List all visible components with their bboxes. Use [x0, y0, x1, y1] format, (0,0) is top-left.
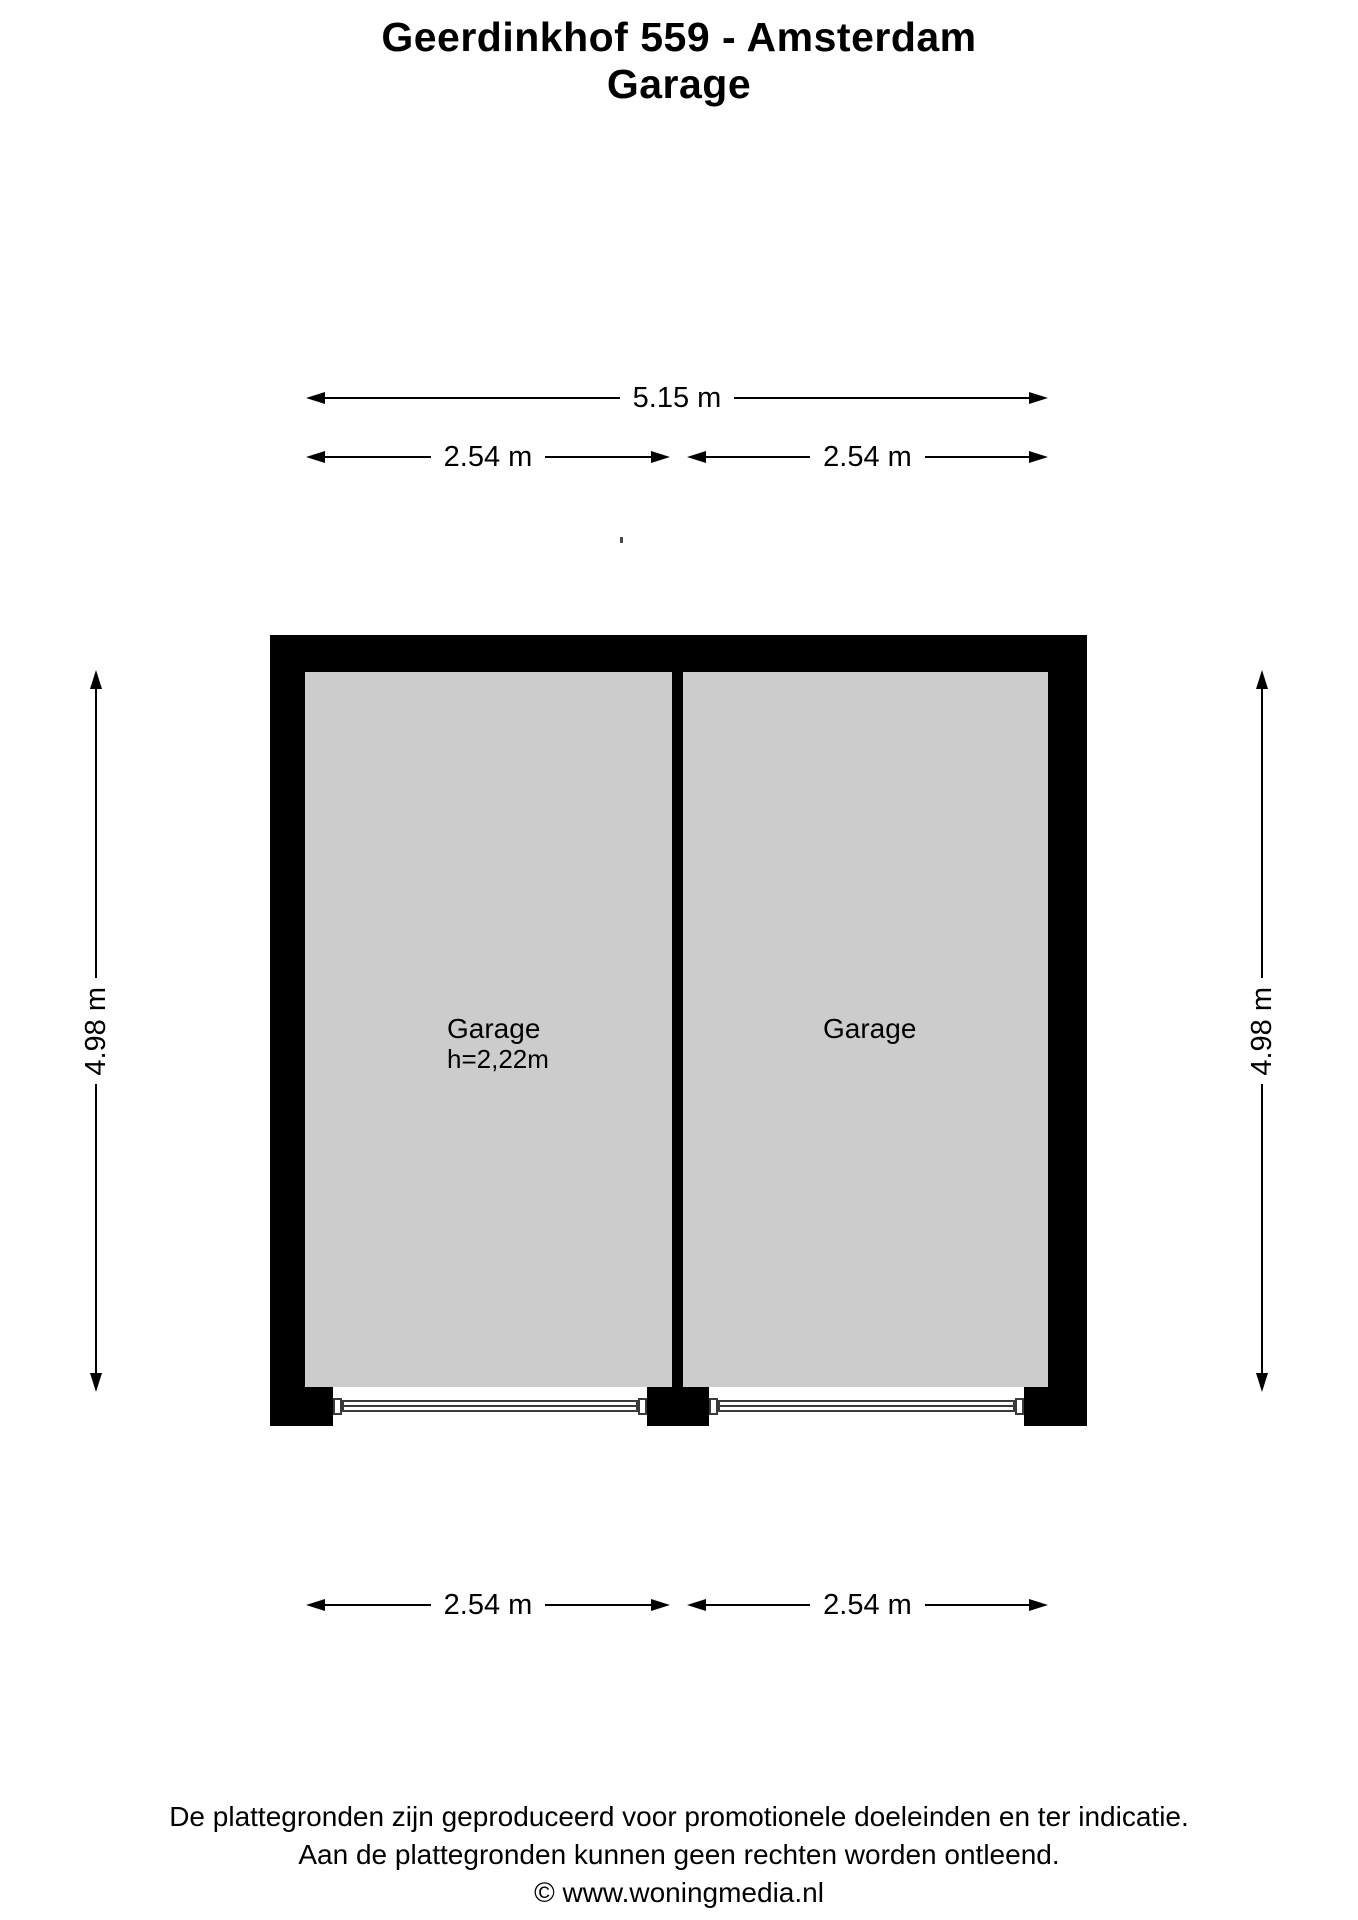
arrow-right-icon — [1029, 451, 1048, 463]
dimension-line — [545, 1604, 651, 1606]
room-name-label: Garage — [823, 1013, 916, 1044]
dimension-label: 4.98 m — [80, 978, 113, 1085]
dimension-side-right: 4.98 m — [1242, 670, 1282, 1392]
arrow-right-icon — [1029, 1599, 1048, 1611]
dimension-label: 2.54 m — [810, 441, 925, 473]
dimension-bottom-left: 2.54 m — [306, 1589, 670, 1621]
garage-door-left — [333, 1395, 647, 1417]
title-address: Geerdinkhof 559 - Amsterdam — [0, 14, 1358, 61]
dimension-line — [734, 397, 1029, 399]
dimension-bottom-right: 2.54 m — [687, 1589, 1048, 1621]
arrow-down-icon — [90, 1373, 102, 1392]
stray-mark — [620, 537, 623, 543]
garage-left-label-block: Garage h=2,22m — [447, 1013, 549, 1074]
dimension-line — [95, 689, 97, 978]
room-name-label: Garage — [447, 1013, 549, 1044]
dimension-label: 4.98 m — [1246, 978, 1279, 1085]
wall-post-right — [1024, 1387, 1087, 1426]
arrow-left-icon — [687, 451, 706, 463]
door-panel — [342, 1400, 638, 1412]
arrow-up-icon — [1256, 670, 1268, 689]
dimension-line — [706, 456, 810, 458]
arrow-left-icon — [306, 451, 325, 463]
footer-disclaimer: De plattegronden zijn geproduceerd voor … — [0, 1798, 1358, 1912]
door-end-cap — [709, 1398, 718, 1415]
dimension-line — [1261, 1084, 1263, 1373]
dimension-line — [706, 1604, 810, 1606]
wall-post-middle — [647, 1387, 709, 1426]
dimension-line — [95, 1084, 97, 1373]
dimension-top-total: 5.15 m — [306, 382, 1048, 414]
page-title: Geerdinkhof 559 - Amsterdam Garage — [0, 14, 1358, 108]
dimension-label: 2.54 m — [431, 441, 546, 473]
dimension-line — [925, 456, 1029, 458]
dimension-line — [325, 456, 431, 458]
wall-post-left — [270, 1387, 333, 1426]
dimension-side-left: 4.98 m — [76, 670, 116, 1392]
door-end-cap — [333, 1398, 342, 1415]
disclaimer-line-1: De plattegronden zijn geproduceerd voor … — [0, 1798, 1358, 1836]
dimension-line — [1261, 689, 1263, 978]
arrow-right-icon — [1029, 392, 1048, 404]
door-end-cap — [1015, 1398, 1024, 1415]
ceiling-height-label: h=2,22m — [447, 1044, 549, 1074]
disclaimer-line-2: Aan de plattegronden kunnen geen rechten… — [0, 1836, 1358, 1874]
door-end-cap — [638, 1398, 647, 1415]
dimension-line — [545, 456, 651, 458]
arrow-left-icon — [306, 1599, 325, 1611]
dimension-label: 5.15 m — [620, 382, 735, 414]
copyright: © www.woningmedia.nl — [0, 1874, 1358, 1912]
arrow-right-icon — [651, 451, 670, 463]
dimension-line — [925, 1604, 1029, 1606]
door-panel — [718, 1400, 1015, 1412]
floorplan-page: Geerdinkhof 559 - Amsterdam Garage 5.15 … — [0, 0, 1358, 1920]
dimension-top-right: 2.54 m — [687, 441, 1048, 473]
dimension-label: 2.54 m — [810, 1589, 925, 1621]
dimension-line — [325, 1604, 431, 1606]
dimension-line — [325, 397, 620, 399]
arrow-left-icon — [687, 1599, 706, 1611]
floor-plan — [270, 635, 1087, 1387]
arrow-down-icon — [1256, 1373, 1268, 1392]
dimension-top-left: 2.54 m — [306, 441, 670, 473]
arrow-left-icon — [306, 392, 325, 404]
dimension-label: 2.54 m — [431, 1589, 546, 1621]
garage-door-right — [709, 1395, 1024, 1417]
title-subtitle: Garage — [0, 61, 1358, 108]
arrow-up-icon — [90, 670, 102, 689]
arrow-right-icon — [651, 1599, 670, 1611]
